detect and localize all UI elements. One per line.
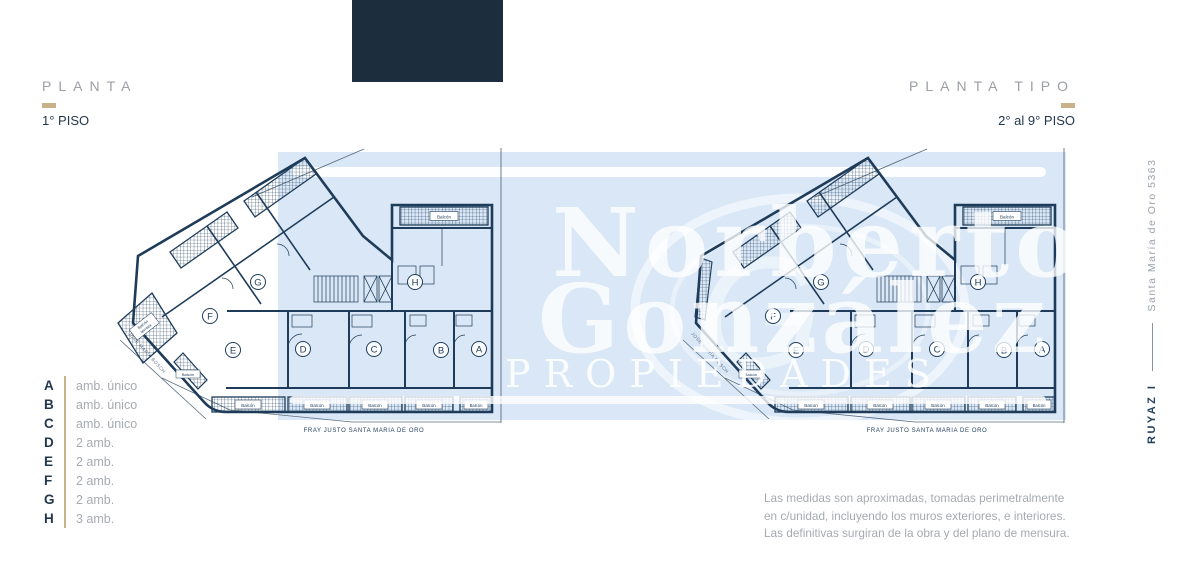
- plan-title: PLANTA: [42, 78, 137, 94]
- legend-desc: 2 amb.: [66, 455, 114, 469]
- west-balcony-strip: [695, 258, 712, 320]
- project-name: RUYAZ I: [1146, 384, 1158, 445]
- legend-desc: 2 amb.: [66, 474, 114, 488]
- plan-subtitle: 2° al 9° PISO: [998, 113, 1075, 128]
- project-side-label: RUYAZ I Santa María de Oro 5363: [1143, 62, 1161, 444]
- plan-title: PLANTA TIPO: [909, 78, 1075, 94]
- side-label-rule: [1152, 324, 1153, 372]
- legend-row-b: B amb. único: [44, 395, 137, 414]
- unit-legend: A amb. único B amb. único C amb. único D…: [44, 376, 137, 528]
- disclaimer-line: Las definitivas surgiran de la obra y de…: [764, 525, 1070, 543]
- gold-dash: [42, 103, 56, 108]
- legend-row-d: D 2 amb.: [44, 433, 137, 452]
- legend-row-h: H 3 amb.: [44, 509, 137, 528]
- project-address: Santa María de Oro 5363: [1146, 159, 1158, 312]
- header-typical-floor: PLANTA TIPO 2° al 9° PISO: [909, 78, 1075, 128]
- legend-desc: 2 amb.: [66, 436, 114, 450]
- legend-letter: A: [44, 378, 64, 393]
- legend-row-e: E 2 amb.: [44, 452, 137, 471]
- legend-desc: amb. único: [66, 417, 137, 431]
- legend-letter: C: [44, 416, 64, 431]
- legend-row-f: F 2 amb.: [44, 471, 137, 490]
- legend-row-g: G 2 amb.: [44, 490, 137, 509]
- legend-letter: G: [44, 492, 64, 507]
- brand-logo-block: [352, 0, 503, 82]
- legend-letter: H: [44, 511, 64, 526]
- legend-letter: B: [44, 397, 64, 412]
- legend-letter: F: [44, 473, 64, 488]
- watermark-bottom-bar: [290, 396, 1046, 404]
- legend-desc: 2 amb.: [66, 493, 114, 507]
- legend-letter: E: [44, 454, 64, 469]
- disclaimer-line: en c/unidad, incluyendo los muros exteri…: [764, 508, 1070, 526]
- header-first-floor: PLANTA 1° PISO: [42, 78, 137, 128]
- legend-letter: D: [44, 435, 64, 450]
- plan-subtitle: 1° PISO: [42, 113, 89, 128]
- disclaimer-line: Las medidas son aproximadas, tomadas per…: [764, 490, 1070, 508]
- legend-row-c: C amb. único: [44, 414, 137, 433]
- legend-row-a: A amb. único: [44, 376, 137, 395]
- legend-desc: 3 amb.: [66, 512, 114, 526]
- legend-desc: amb. único: [66, 398, 137, 412]
- gold-dash: [1061, 103, 1075, 108]
- measurements-disclaimer: Las medidas son aproximadas, tomadas per…: [764, 490, 1070, 543]
- legend-desc: amb. único: [66, 379, 137, 393]
